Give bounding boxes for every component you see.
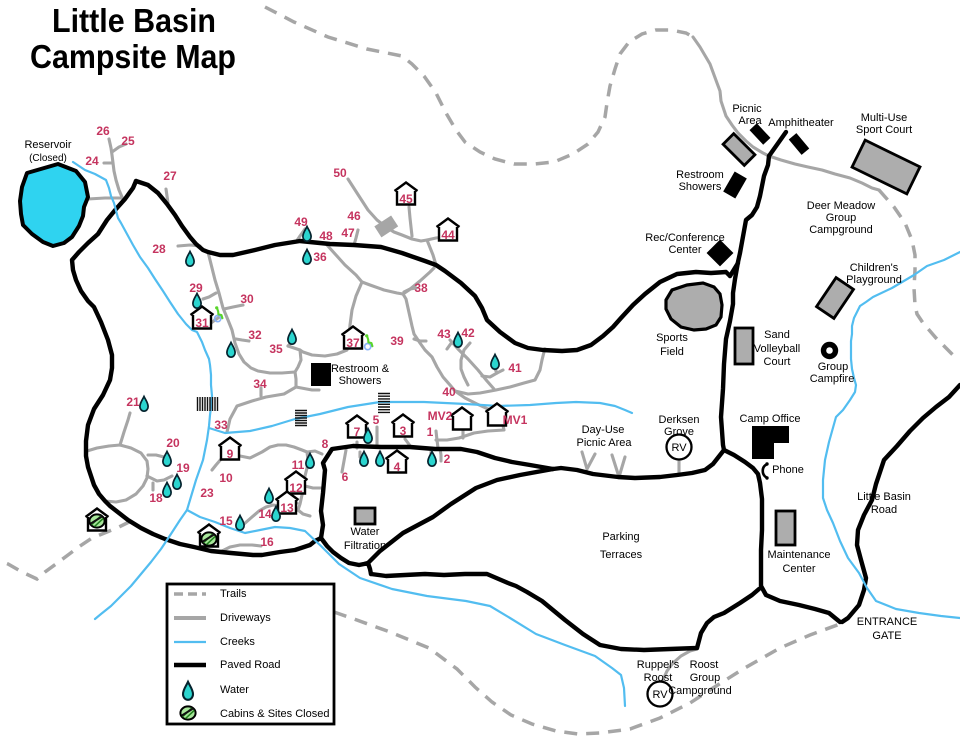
svg-text:50: 50 [333, 166, 347, 180]
svg-text:46: 46 [347, 209, 361, 223]
svg-text:34: 34 [253, 377, 267, 391]
svg-text:33: 33 [214, 418, 228, 432]
svg-text:MV2: MV2 [428, 409, 453, 423]
svg-text:Cabins & Sites Closed: Cabins & Sites Closed [220, 708, 329, 720]
svg-text:15: 15 [219, 514, 233, 528]
svg-text:Group: Group [818, 361, 849, 373]
svg-text:GATE: GATE [872, 630, 901, 642]
svg-text:25: 25 [121, 134, 135, 148]
svg-text:Maintenance: Maintenance [768, 549, 831, 561]
svg-text:Little Basin: Little Basin [857, 491, 911, 503]
svg-text:Sand: Sand [764, 329, 790, 341]
svg-text:32: 32 [248, 328, 262, 342]
svg-text:39: 39 [390, 334, 404, 348]
svg-text:6: 6 [342, 470, 349, 484]
svg-text:Rec/Conference: Rec/Conference [645, 232, 725, 244]
svg-text:Roost: Roost [644, 672, 673, 684]
svg-text:Campfire: Campfire [810, 373, 855, 385]
svg-text:ENTRANCE: ENTRANCE [857, 616, 918, 628]
svg-text:18: 18 [149, 491, 163, 505]
svg-text:36: 36 [313, 250, 327, 264]
svg-text:Roost: Roost [690, 659, 719, 671]
svg-text:Reservoir: Reservoir [24, 139, 71, 151]
svg-text:31: 31 [195, 316, 209, 330]
svg-text:Little Basin: Little Basin [52, 2, 216, 39]
svg-text:Picnic Area: Picnic Area [576, 437, 632, 449]
svg-text:Showers: Showers [679, 181, 722, 193]
svg-text:3: 3 [400, 424, 407, 438]
svg-text:Picnic: Picnic [732, 103, 762, 115]
svg-text:44: 44 [441, 228, 455, 242]
svg-text:23: 23 [200, 486, 214, 500]
svg-text:Restroom &: Restroom & [331, 363, 390, 375]
svg-text:42: 42 [461, 326, 475, 340]
svg-text:8: 8 [322, 437, 329, 451]
svg-text:40: 40 [442, 385, 456, 399]
svg-text:Creeks: Creeks [220, 636, 255, 648]
svg-text:Volleyball: Volleyball [754, 343, 800, 355]
svg-text:47: 47 [341, 226, 355, 240]
svg-text:Children's: Children's [850, 262, 899, 274]
svg-text:Group: Group [690, 672, 721, 684]
svg-text:27: 27 [163, 169, 177, 183]
svg-text:29: 29 [189, 281, 203, 295]
svg-text:Restroom: Restroom [676, 169, 724, 181]
svg-text:10: 10 [219, 471, 233, 485]
svg-text:RV: RV [671, 442, 687, 454]
svg-text:Phone: Phone [772, 464, 804, 476]
svg-text:Multi-Use: Multi-Use [861, 112, 907, 124]
svg-text:Campground: Campground [668, 685, 732, 697]
svg-text:24: 24 [85, 154, 99, 168]
svg-text:Court: Court [764, 356, 791, 368]
svg-text:2: 2 [444, 452, 451, 466]
svg-text:19: 19 [176, 461, 190, 475]
svg-text:Terraces: Terraces [600, 549, 643, 561]
svg-text:45: 45 [399, 192, 413, 206]
svg-text:Playground: Playground [846, 274, 902, 286]
svg-text:1: 1 [427, 425, 434, 439]
svg-text:37: 37 [346, 336, 360, 350]
svg-text:5: 5 [373, 413, 380, 427]
svg-text:Day-Use: Day-Use [582, 424, 625, 436]
svg-text:Grove: Grove [664, 426, 694, 438]
svg-text:Center: Center [782, 563, 815, 575]
svg-text:14: 14 [258, 507, 272, 521]
svg-text:Derksen: Derksen [659, 414, 700, 426]
svg-text:9: 9 [227, 447, 234, 461]
svg-text:Group: Group [826, 212, 857, 224]
svg-text:16: 16 [260, 535, 274, 549]
svg-text:Sport Court: Sport Court [856, 124, 912, 136]
svg-text:38: 38 [414, 281, 428, 295]
svg-text:Trails: Trails [220, 588, 247, 600]
svg-text:Amphitheater: Amphitheater [768, 117, 834, 129]
svg-text:43: 43 [437, 327, 451, 341]
svg-text:Deer Meadow: Deer Meadow [807, 200, 876, 212]
svg-text:Road: Road [871, 504, 897, 516]
svg-text:20: 20 [166, 436, 180, 450]
svg-text:Camp Office: Camp Office [740, 413, 801, 425]
svg-text:35: 35 [269, 342, 283, 356]
svg-text:Showers: Showers [339, 375, 382, 387]
svg-text:Campsite Map: Campsite Map [30, 38, 236, 75]
svg-text:Driveways: Driveways [220, 612, 271, 624]
svg-text:30: 30 [240, 292, 254, 306]
svg-text:(Closed): (Closed) [29, 153, 67, 164]
svg-text:13: 13 [280, 501, 294, 515]
svg-text:Campground: Campground [809, 224, 873, 236]
svg-text:MV1: MV1 [503, 413, 528, 427]
svg-text:RV: RV [652, 689, 668, 701]
svg-text:4: 4 [394, 460, 401, 474]
svg-text:Center: Center [668, 244, 701, 256]
svg-text:11: 11 [292, 458, 305, 472]
svg-text:28: 28 [152, 242, 166, 256]
svg-text:26: 26 [96, 124, 110, 138]
svg-text:12: 12 [289, 481, 303, 495]
svg-text:21: 21 [126, 395, 140, 409]
svg-text:Parking: Parking [602, 531, 639, 543]
svg-text:41: 41 [508, 361, 522, 375]
svg-text:48: 48 [319, 229, 333, 243]
svg-text:Paved Road: Paved Road [220, 659, 281, 671]
svg-text:49: 49 [294, 215, 308, 229]
svg-text:Field: Field [660, 346, 684, 358]
svg-text:Water: Water [351, 526, 380, 538]
svg-text:Filtration: Filtration [344, 540, 386, 552]
svg-text:Sports: Sports [656, 332, 688, 344]
svg-text:Water: Water [220, 684, 249, 696]
svg-text:7: 7 [354, 425, 361, 439]
svg-text:Area: Area [738, 115, 762, 127]
svg-text:Ruppel's: Ruppel's [637, 659, 680, 671]
